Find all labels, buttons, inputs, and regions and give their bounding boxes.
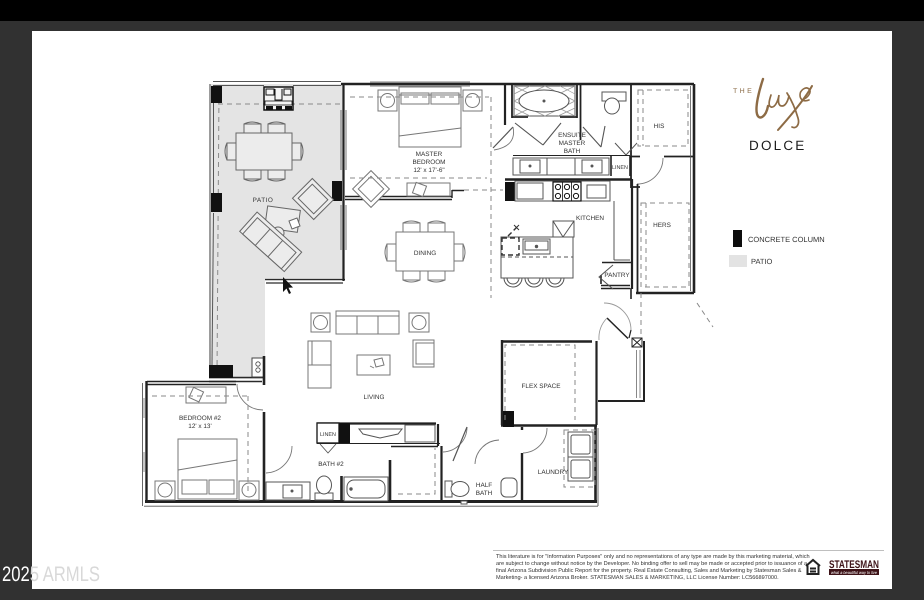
svg-text:what a beautiful way to live: what a beautiful way to live — [831, 570, 878, 575]
svg-text:BEDROOM: BEDROOM — [412, 159, 445, 166]
svg-text:LINEN: LINEN — [612, 165, 628, 171]
svg-text:DINING: DINING — [414, 250, 436, 257]
svg-text:Marketing- a licensed Arizona: Marketing- a licensed Arizona Broker. ST… — [496, 574, 779, 581]
svg-text:LIVING: LIVING — [364, 394, 385, 401]
svg-text:LINEN: LINEN — [320, 432, 336, 438]
svg-text:2025 ARMLS: 2025 ARMLS — [2, 563, 100, 586]
svg-text:HERS: HERS — [653, 222, 671, 229]
svg-text:12' x 17'-6": 12' x 17'-6" — [413, 167, 444, 174]
svg-text:PATIO: PATIO — [253, 197, 274, 204]
svg-text:MASTER: MASTER — [559, 140, 586, 147]
svg-text:This literature is for "Inform: This literature is for "Information Purp… — [496, 553, 810, 560]
svg-text:MASTER: MASTER — [416, 151, 443, 158]
svg-text:BATH: BATH — [564, 148, 581, 155]
svg-text:CONCRETE COLUMN: CONCRETE COLUMN — [748, 235, 825, 244]
svg-text:are subject to change without: are subject to change without notice by … — [496, 560, 808, 567]
svg-text:12' x 13': 12' x 13' — [188, 423, 211, 430]
svg-text:HALF: HALF — [476, 482, 492, 489]
svg-text:final Arizona Subdivision Publ: final Arizona Subdivision Public Report … — [496, 567, 802, 574]
svg-text:ENSUITE: ENSUITE — [558, 132, 586, 139]
svg-text:BEDROOM #2: BEDROOM #2 — [179, 415, 221, 422]
svg-text:BATH: BATH — [476, 490, 493, 497]
svg-text:KITCHEN: KITCHEN — [576, 215, 604, 222]
svg-text:HIS: HIS — [654, 123, 665, 130]
svg-text:FLEX SPACE: FLEX SPACE — [522, 383, 561, 390]
svg-text:BATH #2: BATH #2 — [318, 461, 344, 468]
svg-text:PANTRY: PANTRY — [604, 272, 630, 279]
svg-text:DOLCE: DOLCE — [749, 138, 807, 153]
svg-text:PATIO: PATIO — [751, 257, 773, 266]
svg-text:THE: THE — [733, 88, 754, 95]
svg-text:LAUNDRY: LAUNDRY — [538, 469, 569, 476]
